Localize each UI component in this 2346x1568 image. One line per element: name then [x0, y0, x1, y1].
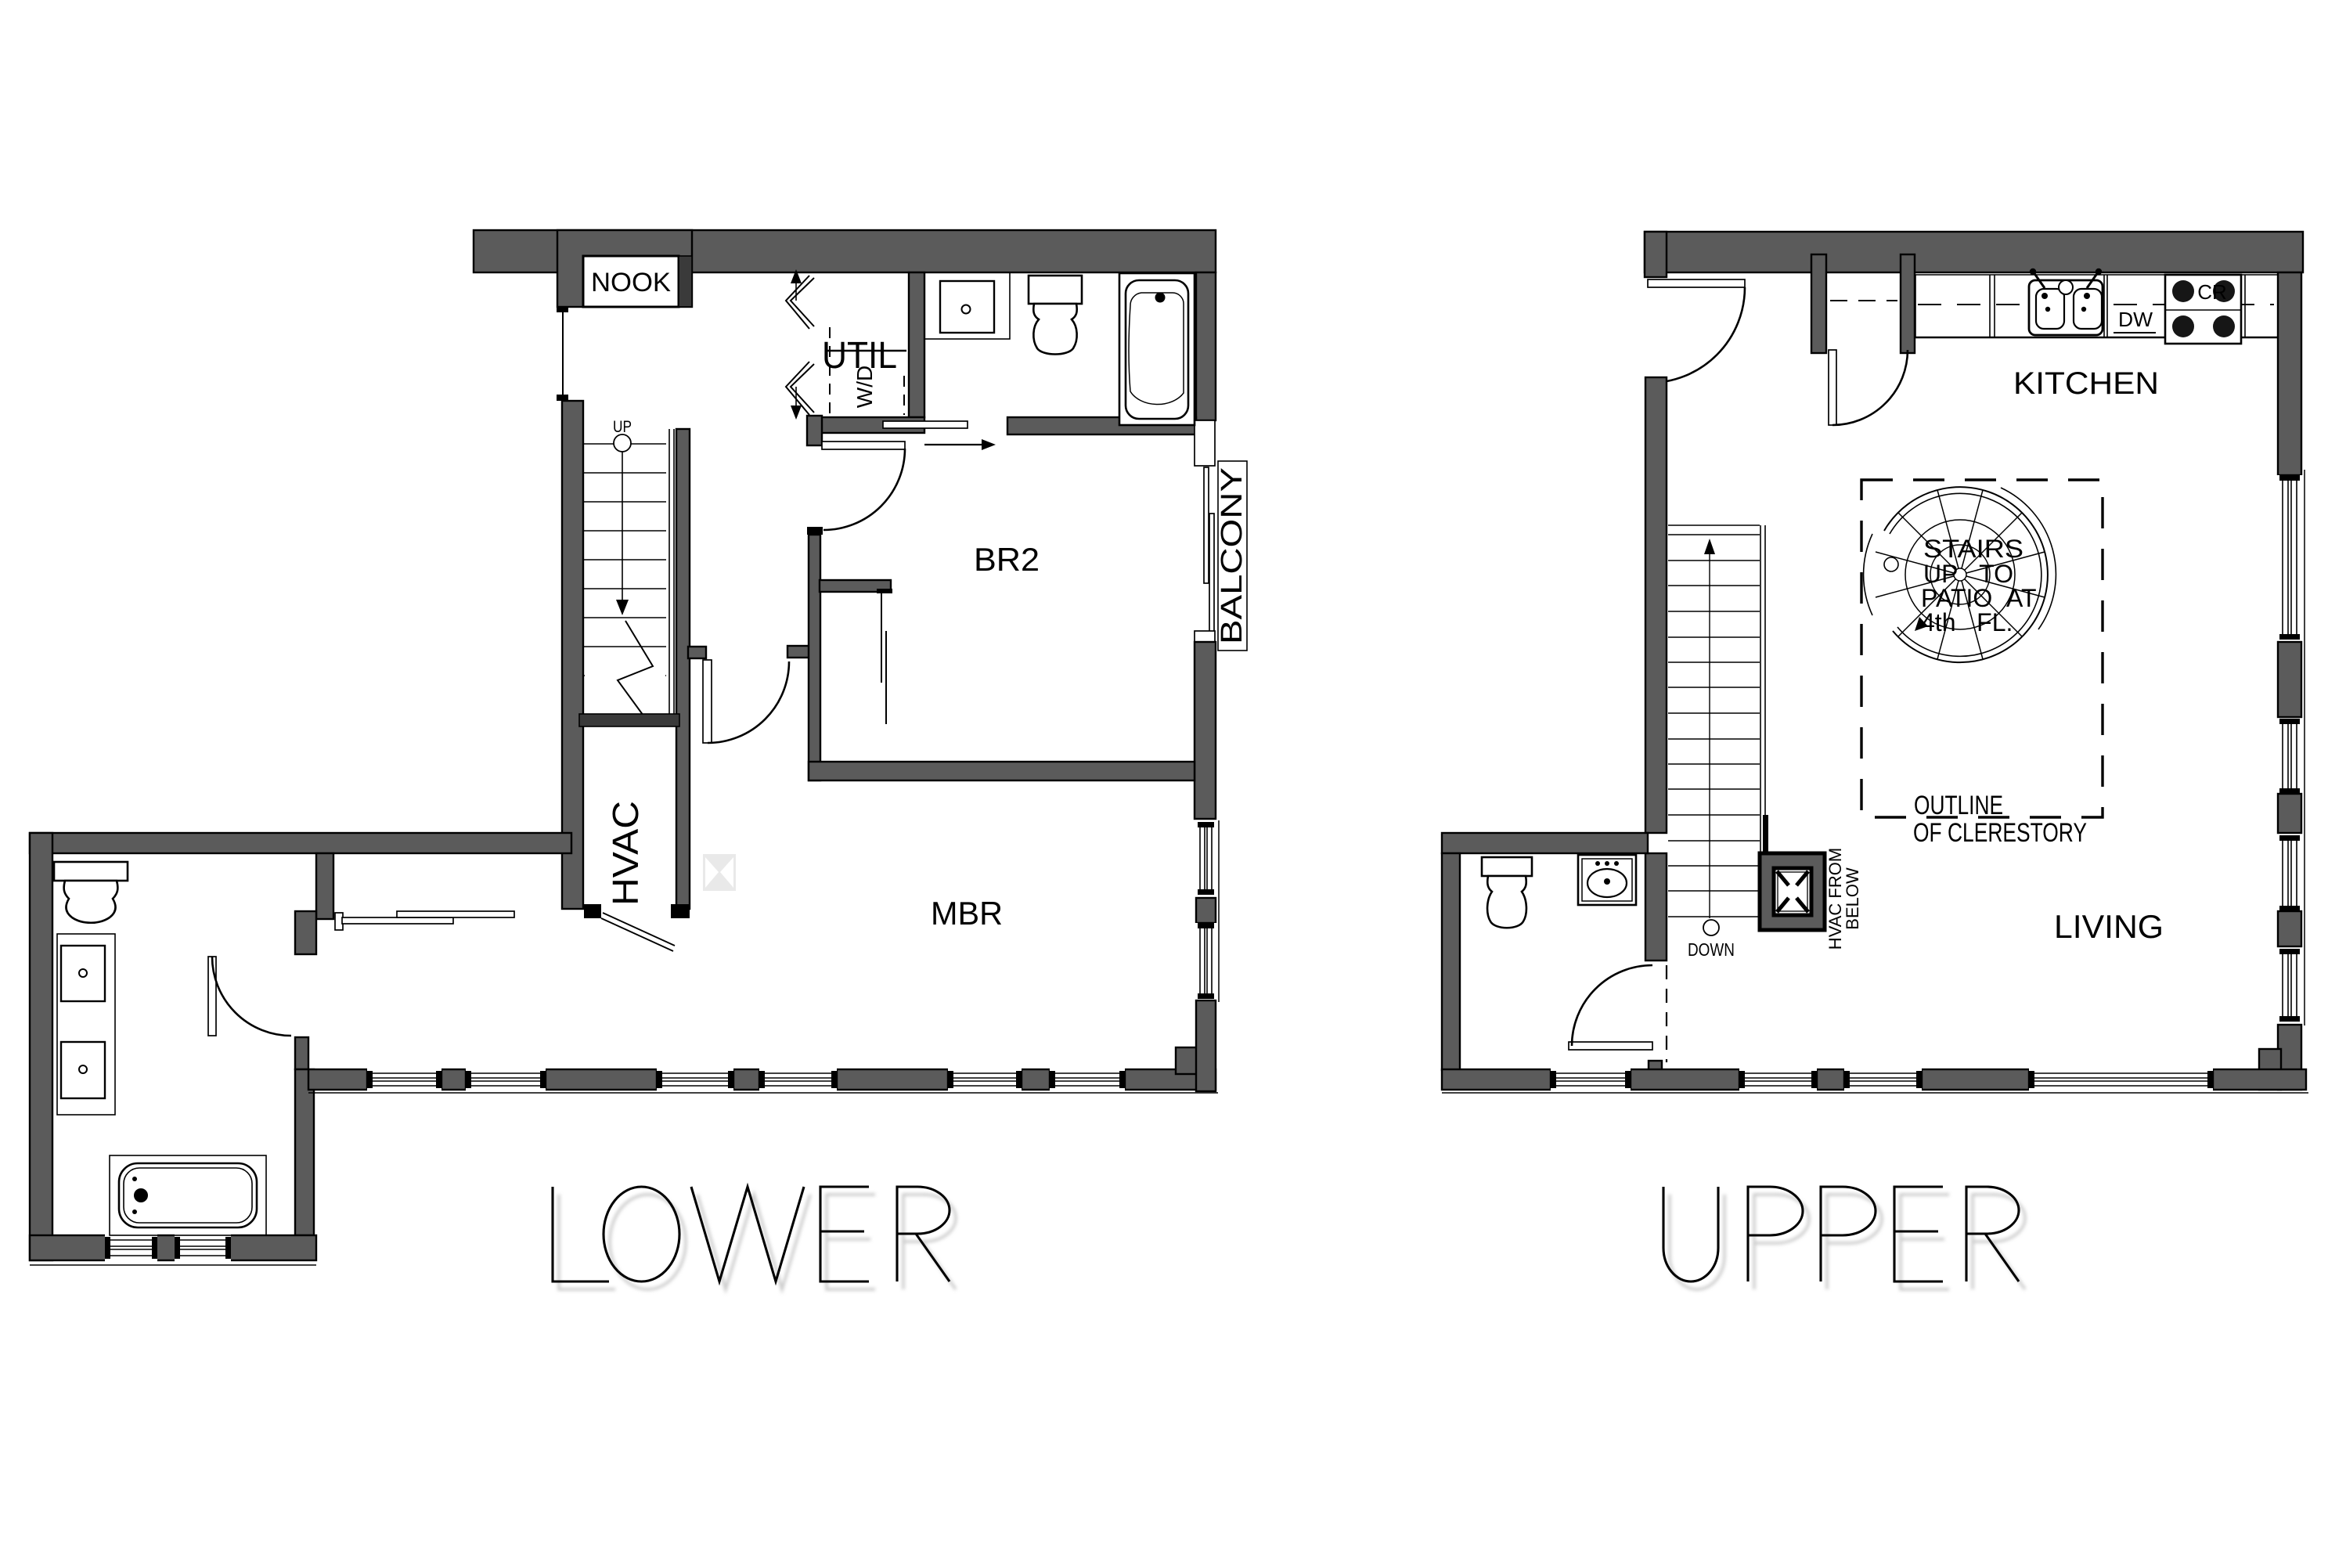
svg-text:CR: CR [2197, 280, 2227, 304]
svg-text:UP: UP [613, 418, 632, 436]
svg-text:OF CLERESTORY: OF CLERESTORY [1913, 818, 2087, 848]
svg-text:MBR: MBR [931, 895, 1003, 932]
svg-text:LIVING: LIVING [2054, 908, 2164, 945]
svg-text:BR2: BR2 [974, 541, 1040, 578]
svg-text:HVAC: HVAC [605, 801, 646, 906]
svg-text:W/D: W/D [852, 366, 877, 408]
svg-text:NOOK: NOOK [591, 268, 671, 297]
svg-text:BALCONY: BALCONY [1216, 467, 1249, 644]
svg-text:KITCHEN: KITCHEN [2013, 366, 2159, 401]
svg-text:STAIRS: STAIRS [1923, 535, 2023, 563]
svg-text:4th FL.: 4th FL. [1921, 608, 2013, 636]
svg-text:DW: DW [2118, 308, 2153, 331]
svg-text:BELOW: BELOW [1843, 867, 1862, 930]
svg-text:DOWN: DOWN [1688, 939, 1735, 960]
svg-text:OUTLINE: OUTLINE [1914, 791, 2003, 820]
